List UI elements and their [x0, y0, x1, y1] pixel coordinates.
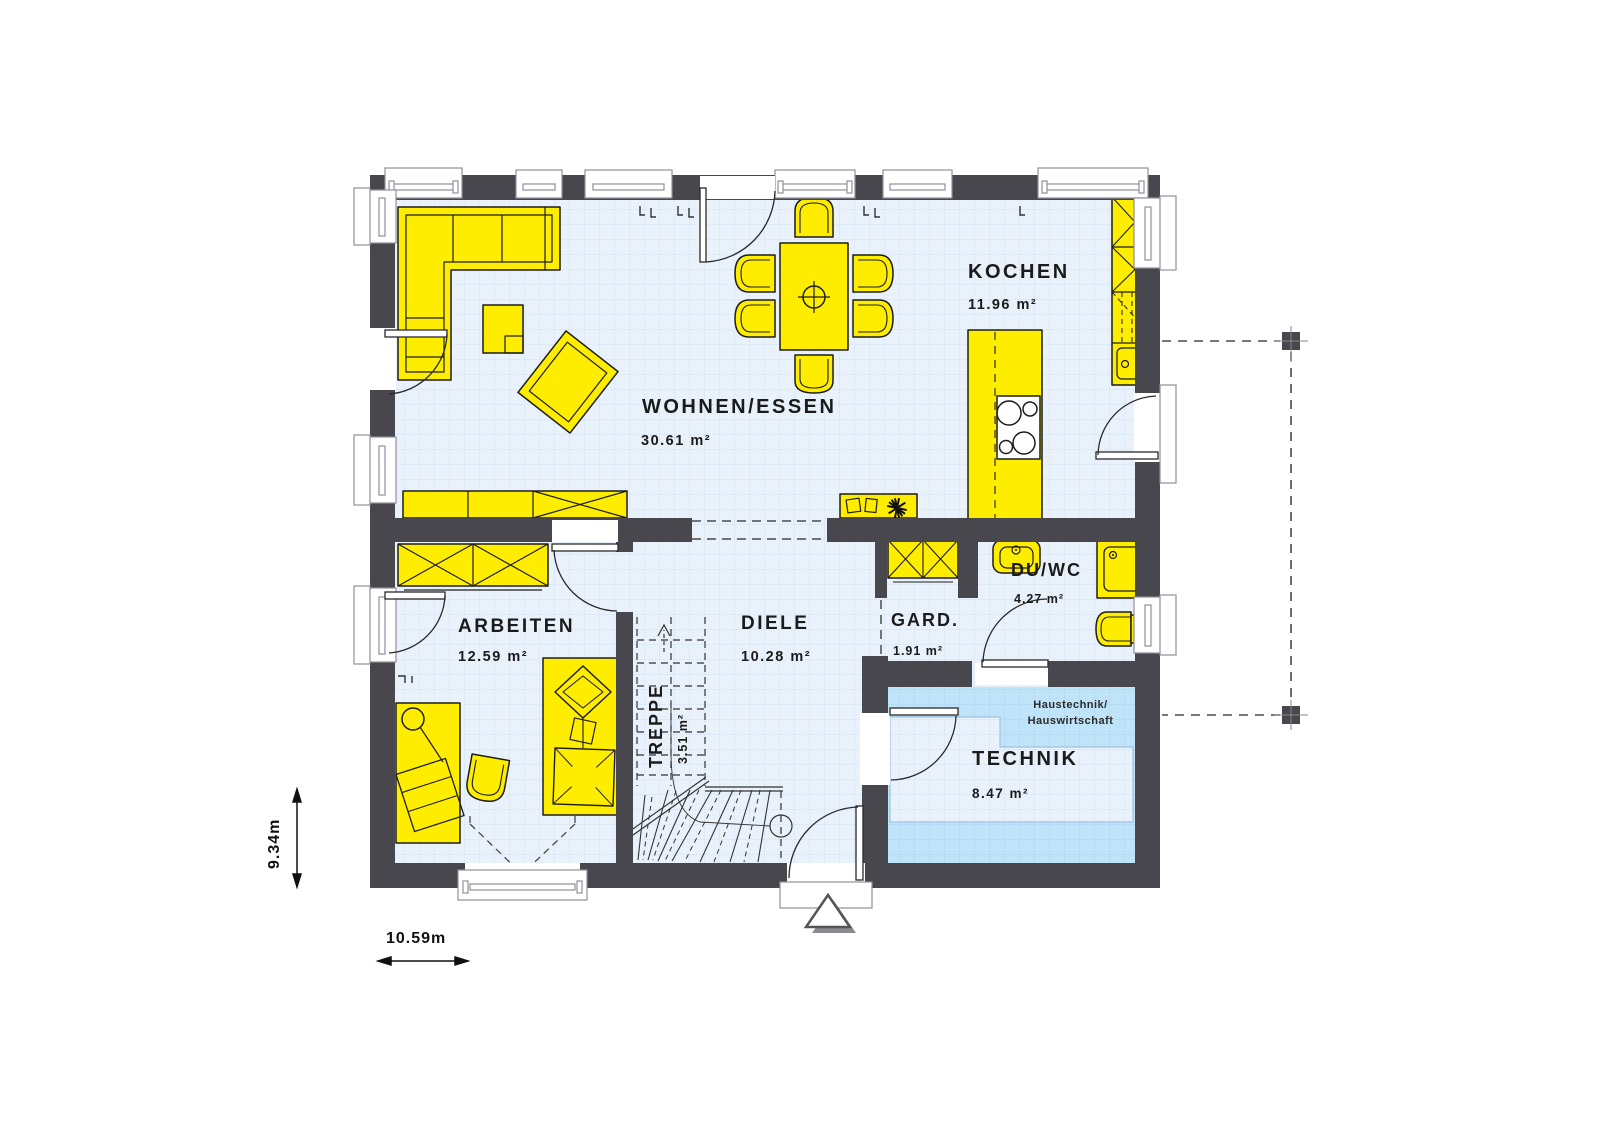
room-area-technik: 8.47 m² — [972, 786, 1029, 801]
daybed — [543, 658, 620, 815]
room-area-wohnen-essen: 30.61 m² — [641, 433, 711, 449]
room-area-diele: 10.28 m² — [741, 649, 811, 665]
office-wardrobe — [398, 544, 548, 590]
technik-note-line2: Hauswirtschaft — [1028, 715, 1114, 727]
kitchen-lowboard — [840, 494, 917, 518]
room-area-treppe: 3.51 m² — [676, 714, 690, 764]
dining-table — [780, 243, 848, 350]
side-table — [483, 305, 523, 353]
room-area-duwc: 4.27 m² — [1014, 592, 1064, 606]
sideboard — [403, 491, 627, 518]
desk — [396, 703, 464, 843]
room-label-arbeiten: ARBEITEN — [458, 616, 575, 638]
room-label-diele: DIELE — [741, 613, 809, 635]
kitchen-island — [968, 330, 1042, 520]
room-label-kochen: KOCHEN — [968, 261, 1070, 284]
room-label-duwc: DU/WC — [1011, 560, 1082, 581]
terrace-outline — [1162, 341, 1291, 715]
room-area-gard: 1.91 m² — [893, 644, 943, 658]
height-dimension-label: 9.34m — [266, 819, 284, 869]
technik-note-line1: Haustechnik/ — [1033, 699, 1107, 711]
floor-plan-drawing — [0, 0, 1600, 1132]
width-dimension-label: 10.59m — [386, 930, 446, 948]
room-area-arbeiten: 12.59 m² — [458, 649, 528, 665]
room-label-wohnen-essen: WOHNEN/ESSEN — [642, 396, 836, 419]
room-label-technik: TECHNIK — [972, 748, 1078, 771]
room-area-kochen: 11.96 m² — [968, 297, 1037, 313]
room-label-treppe: TREPPE — [646, 684, 667, 768]
floor-plan: WOHNEN/ESSEN 30.61 m² KOCHEN 11.96 m² AR… — [0, 0, 1600, 1132]
technik-note: Haustechnik/ Hauswirtschaft — [1003, 698, 1138, 730]
room-label-gard: GARD. — [891, 610, 959, 631]
gard-wardrobe — [888, 540, 958, 582]
